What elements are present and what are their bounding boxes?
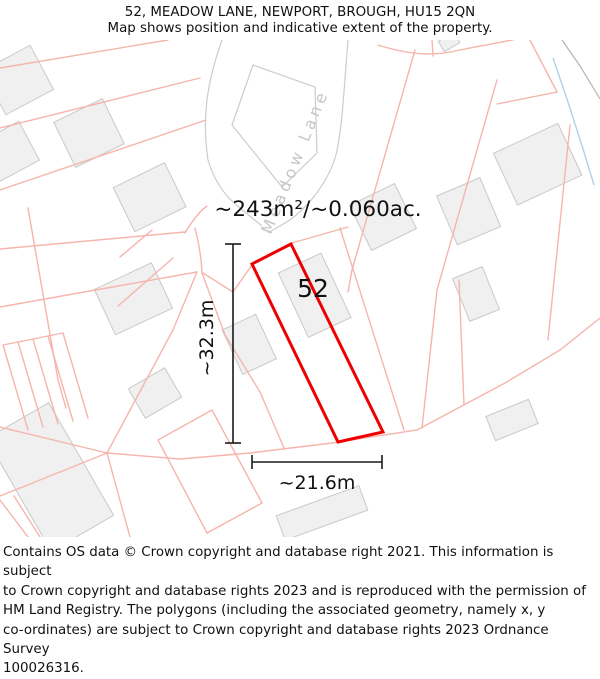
building — [54, 99, 124, 168]
page-title: 52, MEADOW LANE, NEWPORT, BROUGH, HU15 2… — [0, 0, 600, 21]
map-canvas: Meadow Lane ~243m²/~0.060ac. 52 ~32.3m ~… — [0, 0, 600, 625]
footer-line: HM Land Registry. The polygons (includin… — [3, 601, 598, 620]
building — [128, 368, 181, 418]
area-label: ~243m²/~0.060ac. — [214, 197, 421, 222]
plot-number-label: 52 — [297, 274, 329, 303]
height-dimension-label: ~32.3m — [196, 300, 218, 377]
building — [0, 121, 40, 182]
footer-line: Contains OS data © Crown copyright and d… — [3, 543, 598, 582]
footer-line: to Crown copyright and database rights 2… — [3, 582, 598, 601]
header: 52, MEADOW LANE, NEWPORT, BROUGH, HU15 2… — [0, 0, 600, 40]
building — [113, 163, 186, 232]
boundary-gray-line — [562, 40, 600, 99]
footer-line: 100026316. — [3, 659, 598, 678]
building — [0, 45, 54, 114]
building — [437, 178, 501, 245]
dimension-horizontal — [252, 455, 382, 469]
building — [94, 263, 172, 335]
footer-copyright: Contains OS data © Crown copyright and d… — [0, 537, 600, 625]
footer-line: co-ordinates) are subject to Crown copyr… — [3, 621, 598, 660]
width-dimension-label: ~21.6m — [279, 472, 356, 494]
page-subtitle: Map shows position and indicative extent… — [0, 21, 600, 37]
building — [486, 399, 538, 440]
building — [0, 403, 114, 552]
